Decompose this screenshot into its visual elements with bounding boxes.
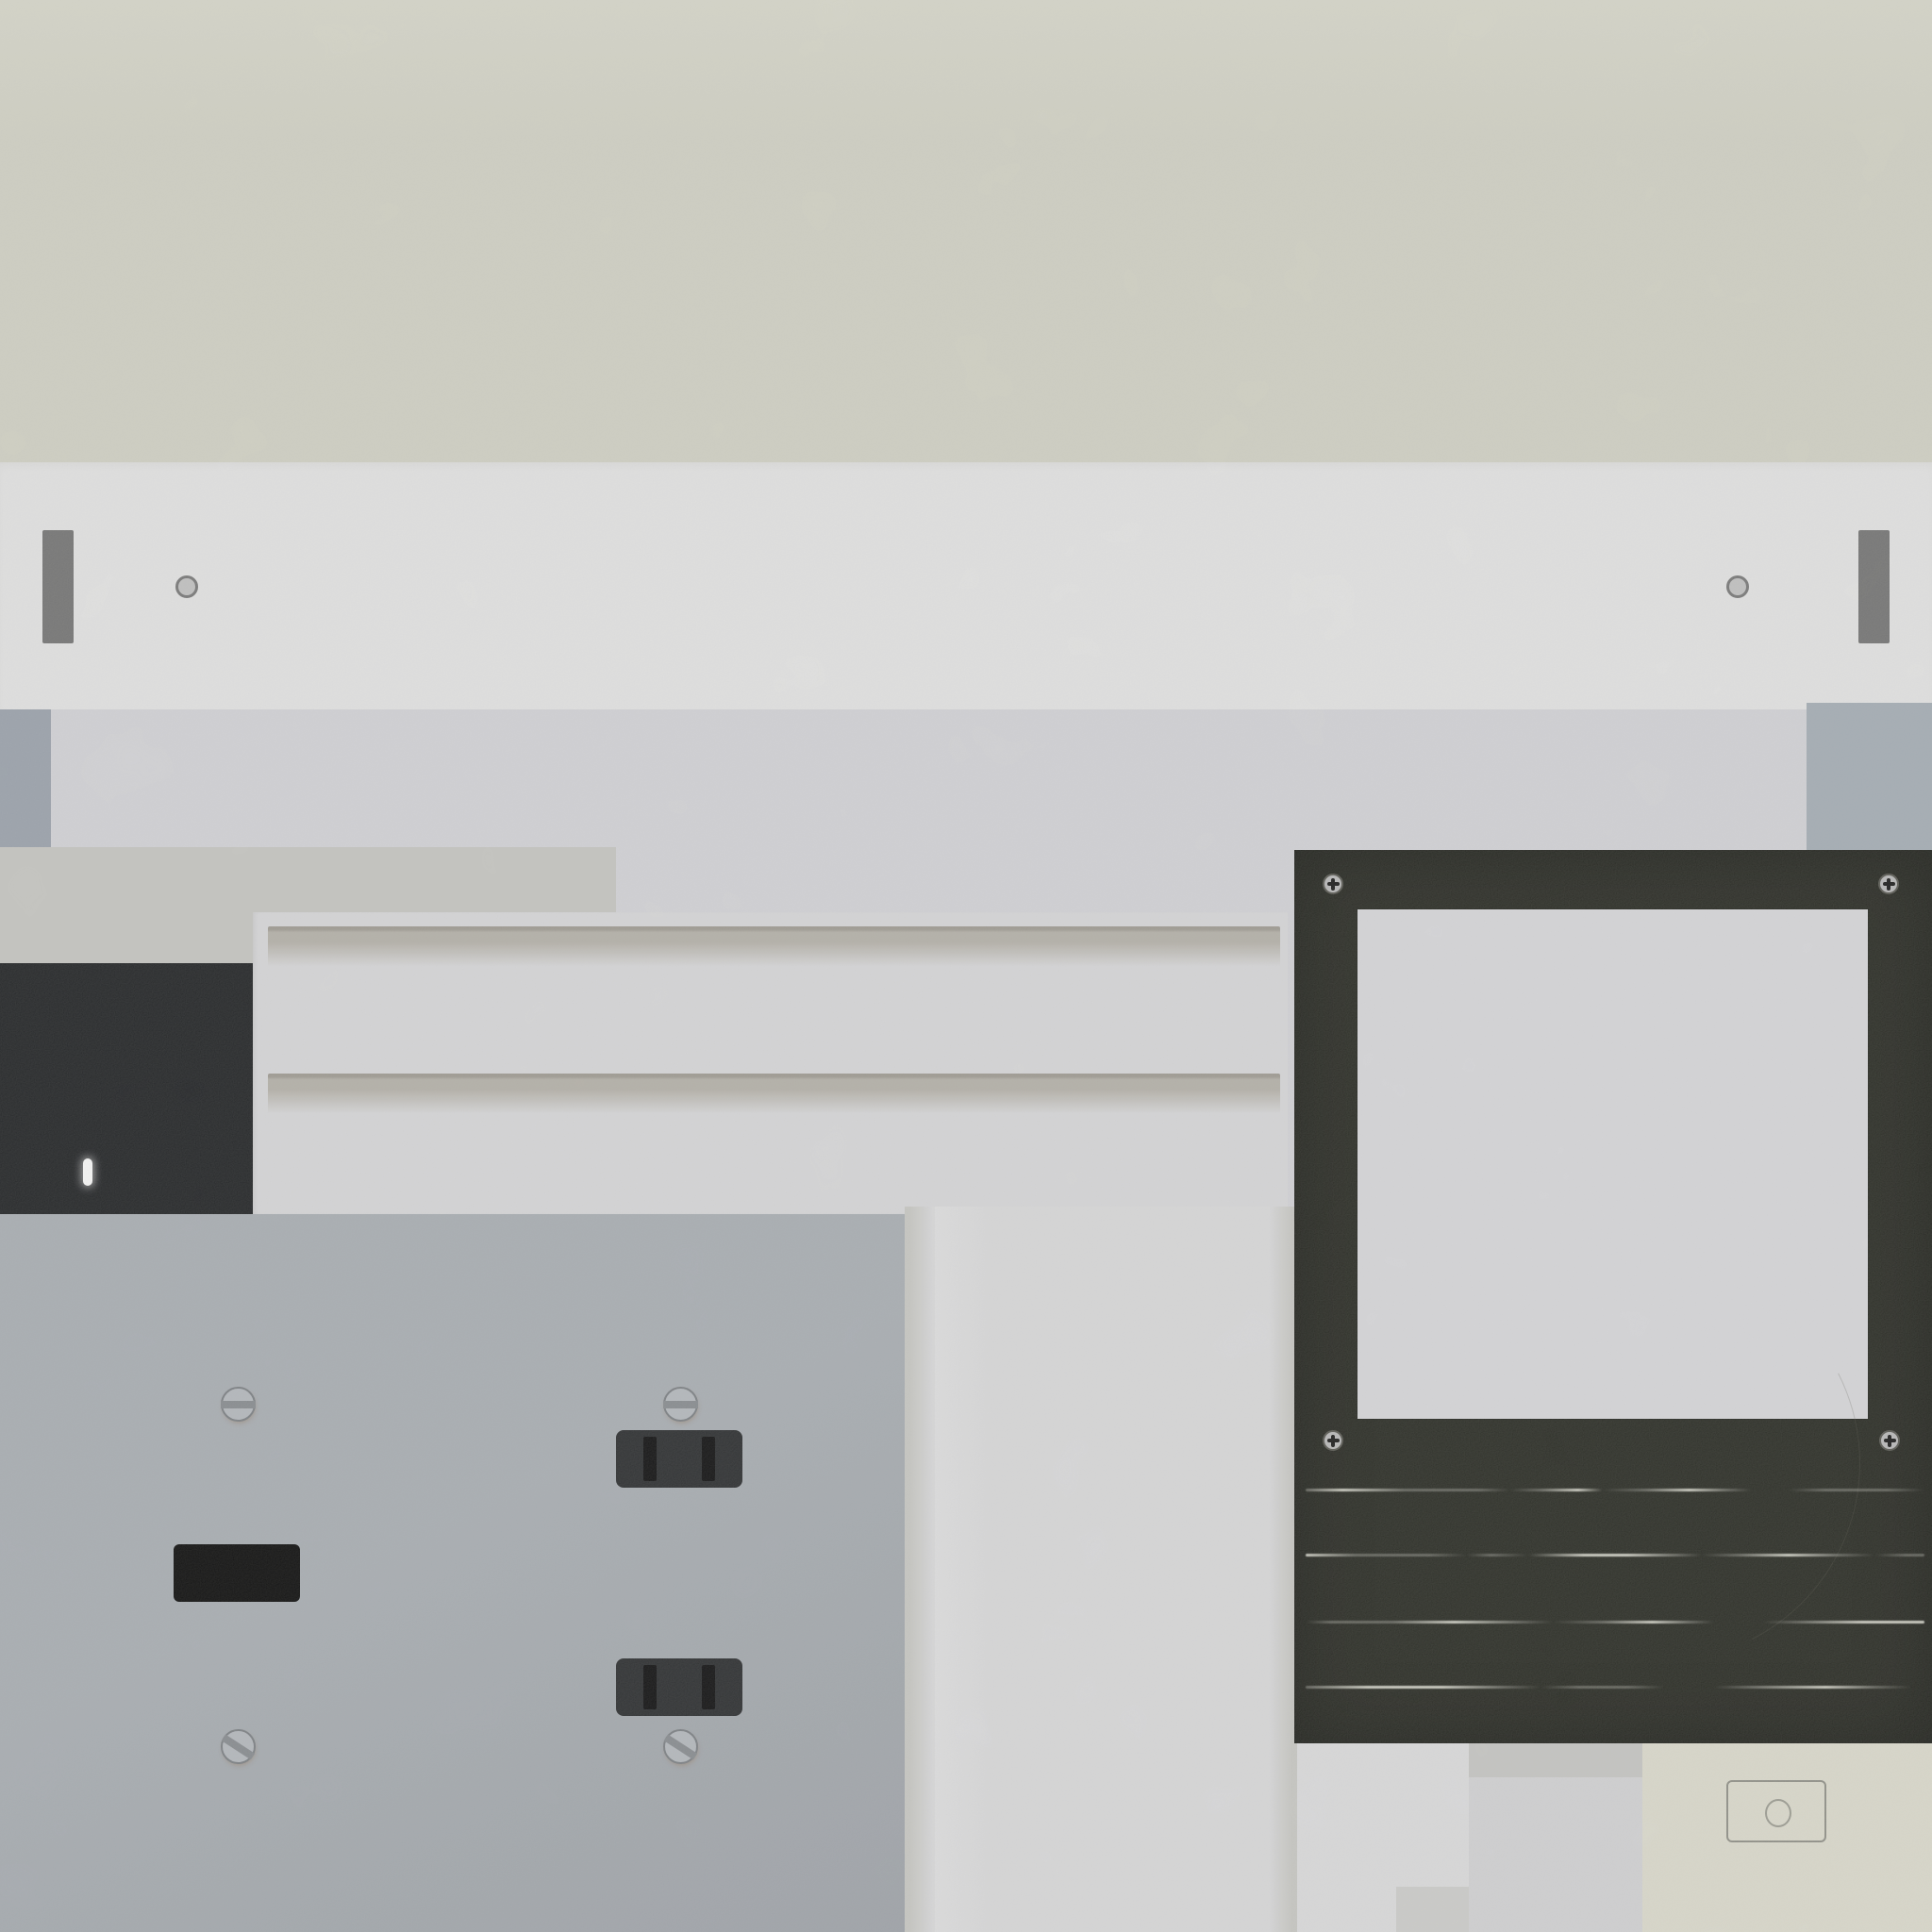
scratch-line-1 xyxy=(1306,1489,1924,1491)
black-label-plate xyxy=(174,1544,300,1602)
slotted-screw-top-right xyxy=(663,1387,698,1422)
door-strip-edge-left xyxy=(905,1207,933,1932)
phillips-cross xyxy=(1887,878,1890,891)
door-strip xyxy=(905,1207,1297,1932)
slotted-screw-top-left xyxy=(221,1387,256,1422)
door-strip-edge-right xyxy=(1269,1207,1297,1932)
switch-plate-outline xyxy=(1726,1780,1826,1842)
scratch-line-2 xyxy=(1306,1554,1924,1557)
outlet-pin-slot xyxy=(643,1437,657,1481)
scene xyxy=(0,0,1932,1932)
vent-slot-right xyxy=(1858,530,1890,643)
lower-column-block xyxy=(1396,1887,1479,1932)
panel-groove-lower xyxy=(268,1074,1280,1117)
black-appliance-panel xyxy=(0,963,253,1214)
phillips-screw-bottom-right xyxy=(1879,1430,1900,1451)
phillips-cross xyxy=(1888,1435,1891,1447)
screw-slot xyxy=(221,1401,256,1408)
screw-slot xyxy=(222,1734,255,1759)
slotted-screw-bottom-left xyxy=(221,1729,256,1764)
light-wall-band xyxy=(0,462,1932,709)
slotted-screw-bottom-right xyxy=(663,1729,698,1764)
screw-slot xyxy=(663,1401,698,1408)
door-strip-highlight xyxy=(935,1207,991,1932)
lower-beige-wall xyxy=(1642,1743,1932,1932)
outlet-lower xyxy=(616,1658,742,1716)
phillips-screw-top-left xyxy=(1323,874,1343,894)
corner-block-right xyxy=(1807,703,1932,850)
switch-plate-ellipse xyxy=(1765,1799,1791,1827)
outlet-pin-slot xyxy=(702,1665,715,1709)
glowing-slot-indicator xyxy=(83,1158,92,1186)
panel-groove-upper xyxy=(268,926,1280,970)
outlet-upper xyxy=(616,1430,742,1488)
screw-slot xyxy=(664,1734,697,1759)
phillips-cross xyxy=(1331,1435,1335,1447)
round-fixture-right xyxy=(1726,575,1749,598)
metal-access-panel xyxy=(0,1214,905,1932)
scratch-line-4 xyxy=(1306,1686,1924,1689)
scratch-line-3 xyxy=(1306,1621,1924,1624)
dark-scratched-board xyxy=(1294,850,1932,1743)
grooved-white-panel xyxy=(253,912,1288,1214)
phillips-screw-top-right xyxy=(1878,874,1899,894)
phillips-screw-bottom-left xyxy=(1323,1430,1343,1451)
outlet-pin-slot xyxy=(702,1437,715,1481)
upper-wall-shading xyxy=(0,0,1932,462)
vent-slot-left xyxy=(42,530,74,643)
lower-column-top-band xyxy=(1469,1743,1642,1777)
phillips-cross xyxy=(1331,878,1335,891)
outlet-pin-slot xyxy=(643,1665,657,1709)
lower-column-mid xyxy=(1469,1743,1642,1932)
corner-block-left xyxy=(0,709,51,848)
round-fixture-left xyxy=(175,575,198,598)
